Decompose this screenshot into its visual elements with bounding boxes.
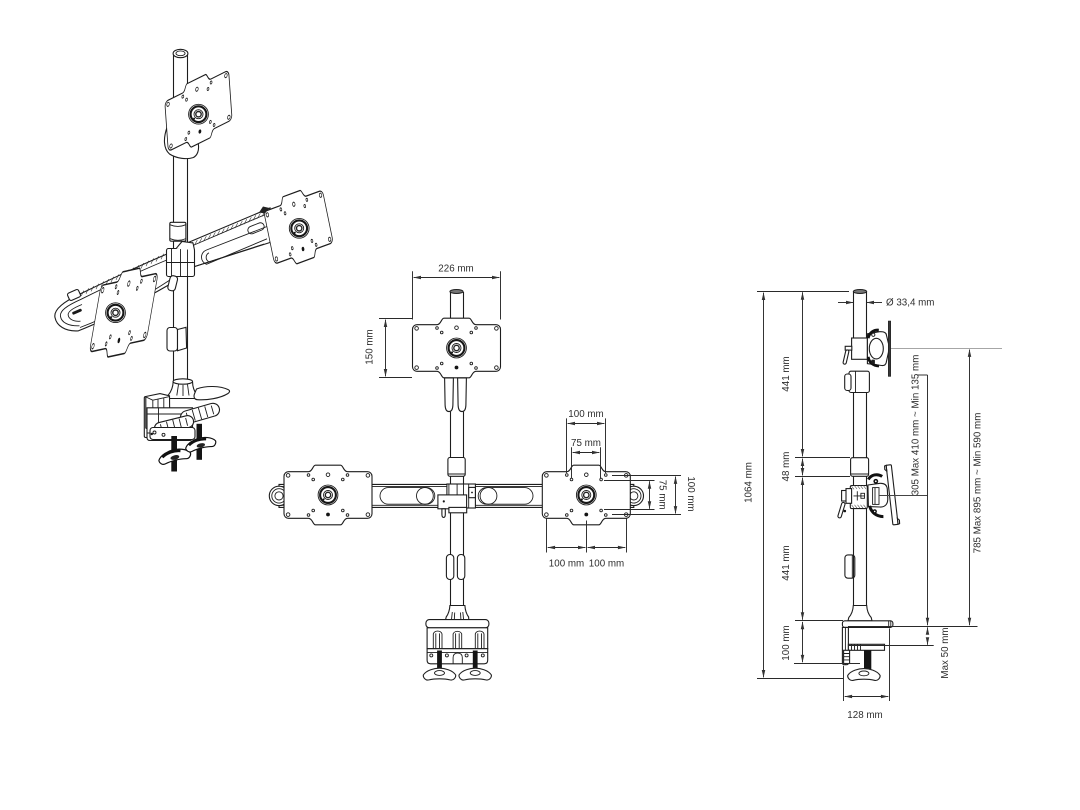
svg-text:1064 mm: 1064 mm — [744, 462, 755, 503]
svg-text:48 mm: 48 mm — [781, 452, 792, 482]
svg-text:305 Max 410 mm ~ Min 135 mm: 305 Max 410 mm ~ Min 135 mm — [911, 355, 922, 496]
svg-text:785 Max 895 mm ~ Min 590 mm: 785 Max 895 mm ~ Min 590 mm — [973, 413, 984, 554]
svg-text:75 mm: 75 mm — [571, 438, 601, 449]
svg-text:100 mm: 100 mm — [781, 625, 792, 660]
svg-text:128 mm: 128 mm — [847, 710, 882, 721]
svg-text:Ø 33,4 mm: Ø 33,4 mm — [886, 298, 934, 309]
svg-text:441 mm: 441 mm — [781, 356, 792, 391]
svg-text:226 mm: 226 mm — [438, 264, 473, 275]
svg-text:100 mm: 100 mm — [549, 559, 584, 570]
svg-text:441 mm: 441 mm — [781, 545, 792, 580]
svg-text:100 mm: 100 mm — [568, 409, 603, 420]
svg-text:150 mm: 150 mm — [364, 329, 375, 364]
svg-text:75 mm: 75 mm — [657, 480, 668, 510]
svg-text:100 mm: 100 mm — [589, 559, 624, 570]
svg-text:100 mm: 100 mm — [685, 476, 696, 511]
svg-text:Max 50 mm: Max 50 mm — [940, 627, 951, 678]
